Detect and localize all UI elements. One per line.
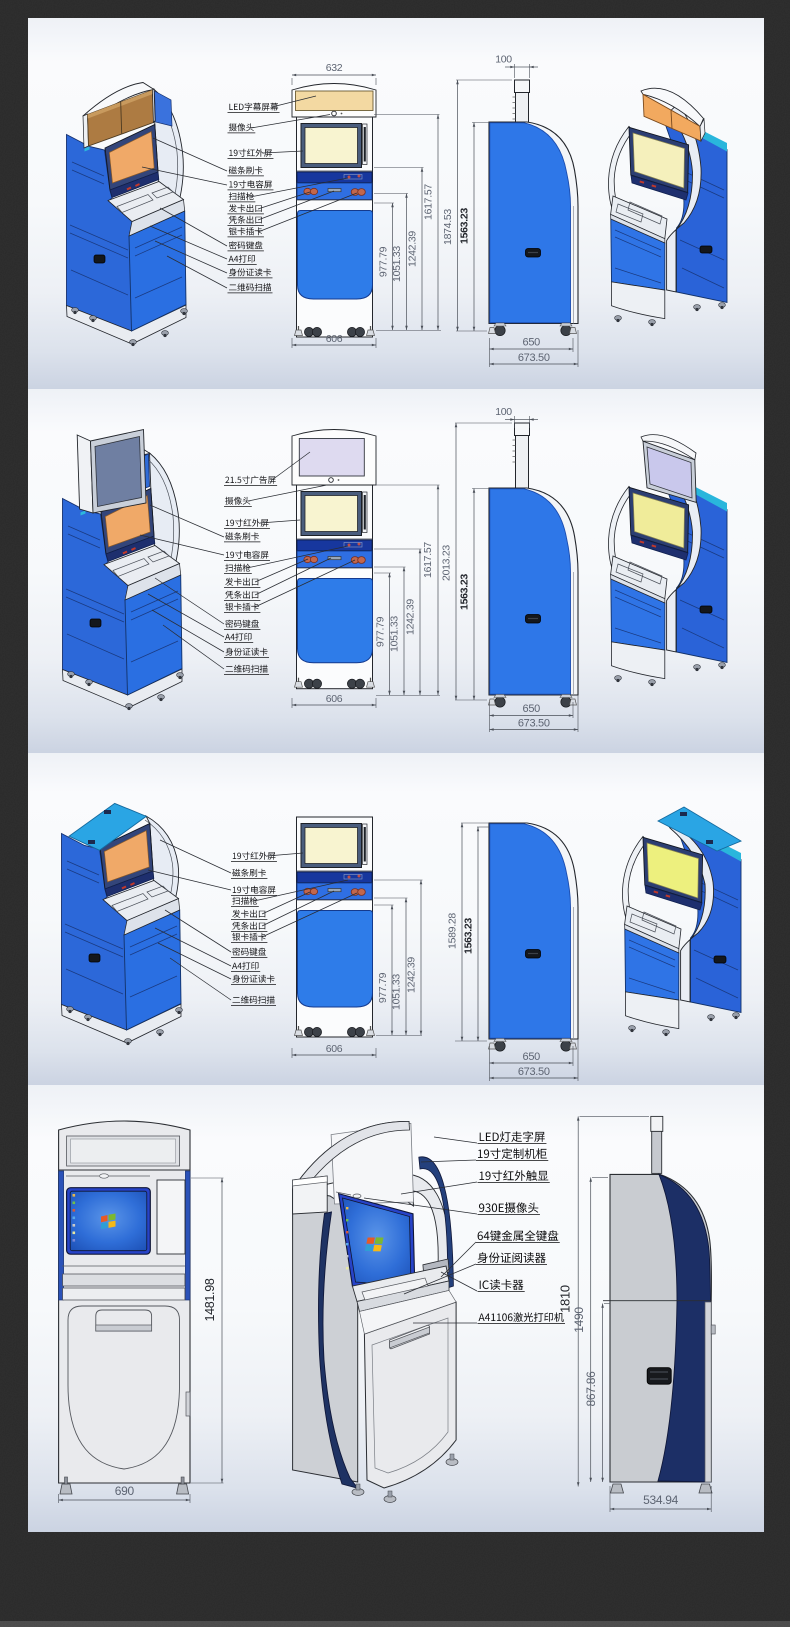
svg-text:2013.23: 2013.23 (441, 545, 453, 581)
svg-text:977.79: 977.79 (375, 616, 387, 647)
svg-text:1617.57: 1617.57 (423, 184, 435, 220)
svg-text:673.50: 673.50 (518, 1066, 550, 1078)
svg-text:650: 650 (523, 703, 541, 715)
svg-text:1490: 1490 (572, 1307, 586, 1333)
svg-text:1051.33: 1051.33 (389, 616, 401, 652)
svg-text:673.50: 673.50 (518, 352, 550, 364)
svg-text:650: 650 (523, 1051, 541, 1063)
svg-text:1589.28: 1589.28 (447, 913, 459, 949)
svg-text:1242.39: 1242.39 (406, 957, 418, 993)
svg-text:650: 650 (523, 337, 541, 349)
svg-text:534.94: 534.94 (643, 1493, 679, 1507)
svg-text:1563.23: 1563.23 (459, 208, 471, 244)
svg-text:1810: 1810 (558, 1285, 573, 1313)
svg-text:100: 100 (495, 54, 512, 66)
svg-text:1051.33: 1051.33 (391, 246, 403, 282)
svg-text:1481.98: 1481.98 (203, 1278, 217, 1321)
svg-text:1051.33: 1051.33 (391, 974, 403, 1010)
svg-text:606: 606 (326, 333, 343, 345)
svg-text:690: 690 (115, 1484, 135, 1498)
svg-text:632: 632 (326, 62, 343, 74)
svg-text:977.79: 977.79 (378, 246, 390, 277)
svg-text:1874.53: 1874.53 (442, 209, 454, 245)
svg-text:1242.39: 1242.39 (405, 599, 417, 635)
svg-text:673.50: 673.50 (518, 718, 550, 730)
svg-text:1563.23: 1563.23 (463, 918, 475, 954)
svg-text:1563.23: 1563.23 (459, 574, 471, 610)
svg-text:100: 100 (495, 406, 512, 418)
svg-text:606: 606 (326, 1043, 343, 1055)
svg-text:867.86: 867.86 (584, 1371, 598, 1407)
svg-text:1242.39: 1242.39 (407, 231, 419, 267)
svg-text:1617.57: 1617.57 (422, 542, 434, 578)
svg-text:606: 606 (326, 693, 343, 705)
svg-text:977.79: 977.79 (377, 972, 389, 1003)
